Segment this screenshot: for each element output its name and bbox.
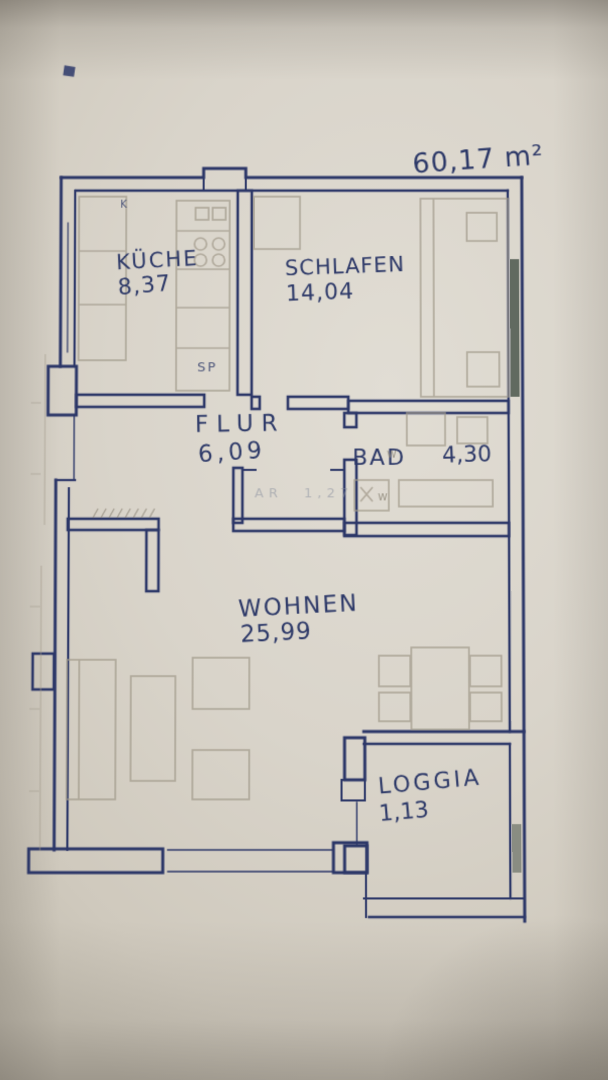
ink-blot (63, 65, 75, 76)
margin-pencil-lines (29, 354, 46, 851)
living-furniture (67, 658, 250, 800)
bad-mark-2: w (378, 490, 388, 502)
room-label-schlafen: SCHLAFEN (285, 254, 406, 279)
loggia-window-mark (512, 824, 521, 872)
floor-plan: 60,17 m² KÜCHE 8,37 SCHLAFEN 14,04 FLUR … (0, 0, 608, 1080)
closet-bottom-wall (233, 519, 344, 531)
room-area-kueche: 8,37 (117, 273, 172, 300)
room-area-loggia: 1,13 (378, 799, 430, 826)
room-area-schlafen: 14,04 (286, 281, 355, 306)
room-area-bad: 4,30 (442, 444, 492, 468)
dining-set (379, 647, 502, 729)
bedroom-hall-wall (288, 397, 348, 409)
bath-top-wall (348, 401, 508, 413)
closet-name: AR (255, 486, 283, 501)
kitchen-corner-mark-label: K (120, 201, 127, 211)
room-label-kueche: KÜCHE (116, 248, 200, 274)
closet-label: AR 1,27 (255, 487, 354, 500)
room-label-flur: FLUR (195, 412, 286, 437)
kitchen-hall-wall (76, 395, 204, 407)
bath-living-wall (344, 523, 509, 536)
bed (420, 199, 508, 397)
closet-area: 1,27 (304, 486, 353, 501)
closet-left-wall (233, 468, 242, 523)
room-area-flur: 6,09 (197, 439, 266, 467)
outside-pillar (33, 654, 54, 690)
bad-mark-1: w (387, 448, 397, 460)
wardrobe (254, 197, 300, 249)
room-label-bad: BAD (352, 448, 406, 470)
outer-walls (28, 168, 524, 921)
schlafen-window-mark (510, 259, 520, 397)
floor-plan-photo: 60,17 m² KÜCHE 8,37 SCHLAFEN 14,04 FLUR … (0, 0, 608, 1080)
kitchen-bedroom-divider (238, 191, 252, 395)
hall-living-wall (68, 519, 159, 530)
stove-burners-icon (194, 238, 224, 266)
living-wall-stub (146, 530, 158, 591)
room-area-wohnen: 25,99 (240, 620, 313, 647)
wall-hatching (93, 509, 155, 518)
room-label-wohnen: WOHNEN (238, 592, 359, 622)
sink-mark-label: SP (197, 361, 217, 374)
